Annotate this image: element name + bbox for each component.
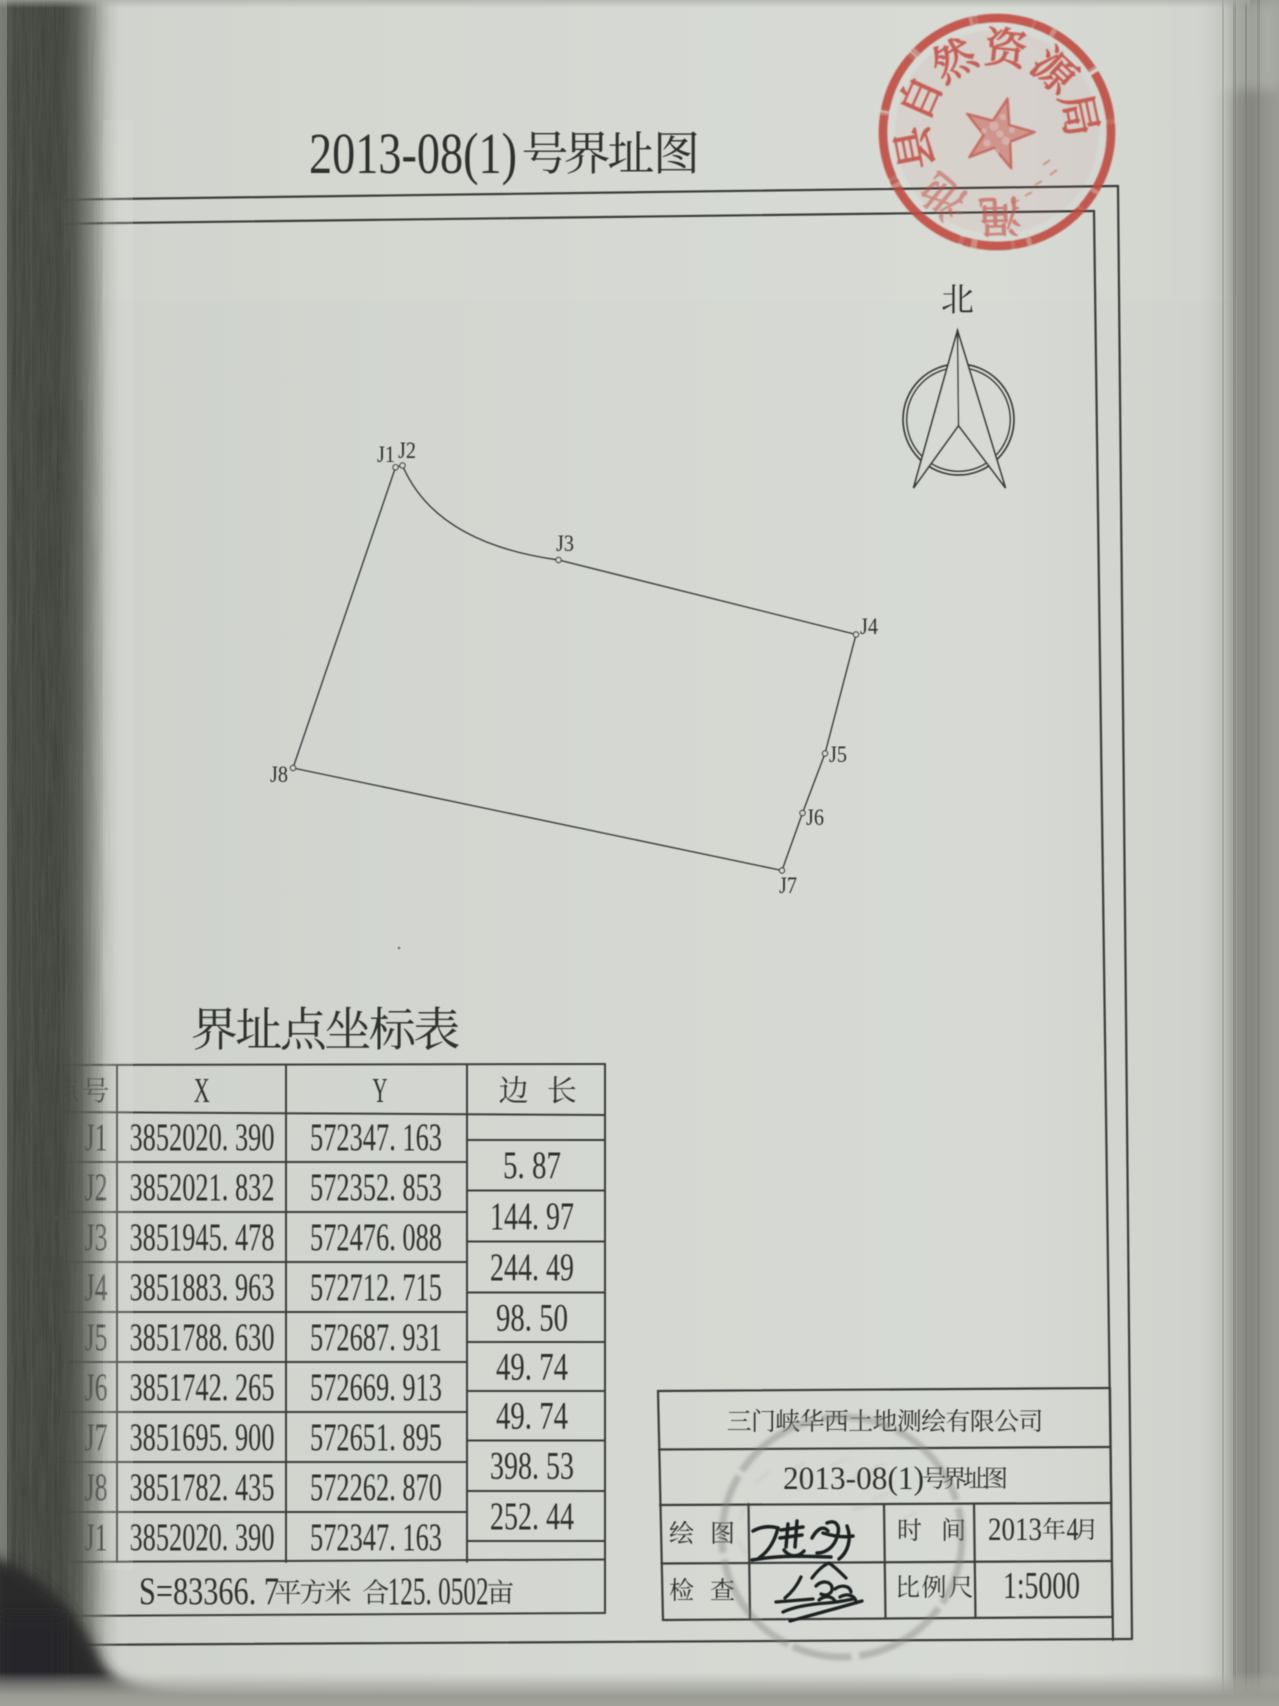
svg-text:3851883. 963: 3851883. 963 — [130, 1266, 275, 1309]
svg-text:Y: Y — [373, 1071, 388, 1110]
svg-text:J3: J3 — [556, 531, 574, 556]
svg-text:244. 49: 244. 49 — [490, 1246, 574, 1289]
svg-text:J6: J6 — [806, 805, 824, 830]
svg-text:J7: J7 — [779, 873, 797, 898]
svg-text:49. 74: 49. 74 — [496, 1346, 568, 1389]
svg-text:572687. 931: 572687. 931 — [310, 1316, 442, 1359]
svg-text:572347. 163: 572347. 163 — [310, 1116, 442, 1159]
svg-text:572352. 853: 572352. 853 — [310, 1166, 442, 1209]
svg-text:4: 4 — [1067, 1512, 1079, 1548]
svg-text:3851695. 900: 3851695. 900 — [130, 1416, 275, 1459]
svg-text:J1: J1 — [377, 442, 395, 467]
svg-text:3851945. 478: 3851945. 478 — [130, 1216, 275, 1259]
svg-text:49. 74: 49. 74 — [496, 1395, 568, 1438]
svg-text:J8: J8 — [270, 762, 288, 787]
svg-text:572347. 163: 572347. 163 — [310, 1516, 442, 1559]
svg-text:252. 44: 252. 44 — [490, 1495, 574, 1538]
svg-text:125. 0502: 125. 0502 — [388, 1570, 489, 1613]
svg-text:3852020. 390: 3852020. 390 — [130, 1116, 275, 1159]
svg-text:572651. 895: 572651. 895 — [310, 1416, 442, 1459]
svg-text:J2: J2 — [398, 438, 416, 463]
svg-text:3851788. 630: 3851788. 630 — [130, 1316, 275, 1359]
svg-text:J4: J4 — [860, 614, 878, 639]
svg-text:X: X — [194, 1071, 210, 1110]
svg-text:J5: J5 — [829, 742, 847, 767]
svg-text:3851742. 265: 3851742. 265 — [130, 1366, 275, 1409]
svg-text:398. 53: 398. 53 — [490, 1445, 574, 1488]
svg-text:3852020. 390: 3852020. 390 — [130, 1516, 275, 1559]
svg-text:144. 97: 144. 97 — [490, 1195, 574, 1238]
svg-text:1:5000: 1:5000 — [1003, 1565, 1080, 1607]
svg-text:572712. 715: 572712. 715 — [310, 1266, 442, 1309]
svg-text:572262. 870: 572262. 870 — [310, 1466, 442, 1509]
svg-text:572669. 913: 572669. 913 — [310, 1366, 442, 1409]
svg-text:3851782. 435: 3851782. 435 — [130, 1466, 275, 1509]
svg-text:2013: 2013 — [988, 1512, 1042, 1548]
svg-text:3852021. 832: 3852021. 832 — [130, 1166, 275, 1209]
svg-text:572476. 088: 572476. 088 — [310, 1216, 442, 1259]
svg-text:S=83366. 7: S=83366. 7 — [139, 1570, 279, 1613]
svg-text:98. 50: 98. 50 — [496, 1297, 568, 1340]
svg-text:2013-08(1): 2013-08(1) — [309, 121, 517, 186]
svg-text:5. 87: 5. 87 — [503, 1144, 561, 1187]
